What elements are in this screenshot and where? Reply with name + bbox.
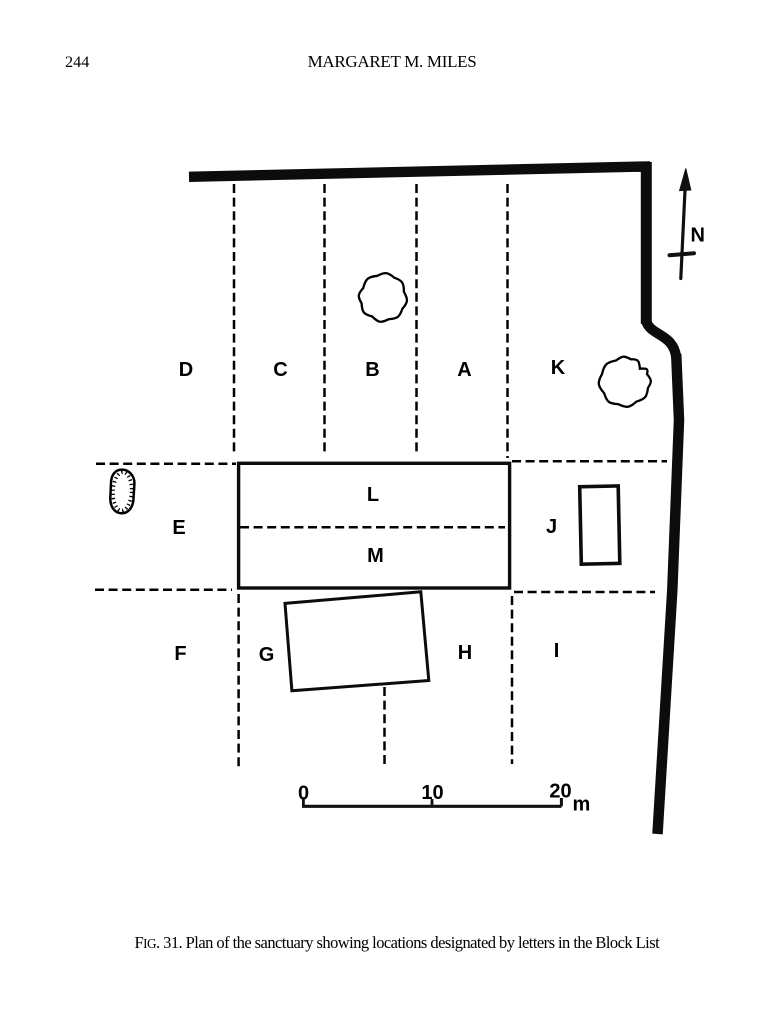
svg-text:C: C xyxy=(273,359,287,381)
svg-text:D: D xyxy=(179,359,193,381)
svg-text:G: G xyxy=(259,644,275,666)
svg-text:m: m xyxy=(573,794,591,816)
svg-text:J: J xyxy=(546,516,557,538)
svg-text:A: A xyxy=(457,359,471,381)
svg-text:244: 244 xyxy=(65,53,89,71)
svg-text:20: 20 xyxy=(549,781,571,803)
svg-text:L: L xyxy=(367,484,379,506)
svg-text:H: H xyxy=(458,642,472,664)
svg-text:10: 10 xyxy=(421,782,443,804)
svg-text:N: N xyxy=(691,225,705,247)
svg-text:M: M xyxy=(367,545,384,567)
svg-text:F: F xyxy=(174,643,186,665)
svg-text:E: E xyxy=(172,517,185,539)
svg-text:I: I xyxy=(554,640,560,662)
svg-text:B: B xyxy=(365,359,379,381)
svg-text:0: 0 xyxy=(298,783,309,805)
svg-text:K: K xyxy=(551,357,566,379)
svg-text:FIG. 31. Plan of the sanctuary: FIG. 31. Plan of the sanctuary showing l… xyxy=(135,933,661,952)
svg-text:MARGARET M. MILES: MARGARET M. MILES xyxy=(308,52,477,71)
